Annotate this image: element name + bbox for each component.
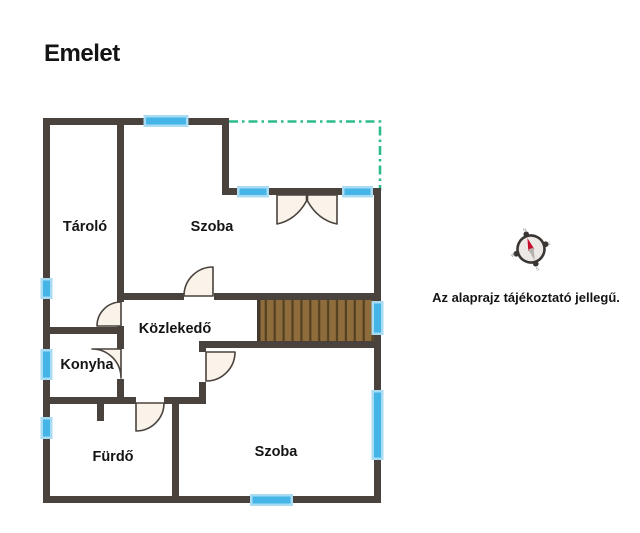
- terrace-boundary-line: [229, 122, 380, 192]
- wall-taroio-konyha: [50, 327, 117, 334]
- compass-east-label: E: [547, 241, 551, 247]
- room-label-furdo: Fürdő: [92, 449, 133, 465]
- wall-taroio-east-mid: [117, 326, 124, 349]
- compass-south-label: S: [535, 266, 539, 272]
- window: [237, 186, 269, 198]
- wall-kozlekedo-north-w: [124, 293, 184, 300]
- door-szoba-top: [184, 267, 213, 296]
- window: [41, 417, 53, 439]
- wall-furdo-north-w: [50, 397, 136, 404]
- window: [372, 301, 384, 335]
- room-label-szoba-top: Szoba: [191, 219, 234, 235]
- wall-taroio-east-upper: [117, 125, 124, 302]
- floor-plan-page: Emelet: [0, 0, 640, 533]
- wall-kozlekedo-north-e: [214, 293, 374, 300]
- room-label-taroio: Tároló: [63, 219, 107, 235]
- wall-outer-bottom: [43, 496, 381, 503]
- wall-furdo-north-e: [164, 397, 199, 404]
- wall-shower-stub: [97, 404, 104, 421]
- wall-outer-left: [43, 118, 50, 503]
- wall-outer-top: [43, 118, 229, 125]
- wall-terrace-left: [222, 118, 229, 195]
- stairs: [257, 300, 374, 341]
- room-label-kozlekedo: Közlekedő: [139, 321, 212, 337]
- window: [41, 278, 53, 299]
- compass-icon: N E S W: [504, 221, 558, 278]
- window: [41, 349, 53, 380]
- door-furdo: [136, 403, 164, 431]
- window: [250, 494, 293, 506]
- wall-stairs-south: [199, 341, 374, 348]
- door-taroio: [97, 302, 121, 326]
- compass-north-label: N: [523, 227, 528, 233]
- wall-furdo-east: [172, 404, 179, 496]
- balcony-double-door: [271, 188, 342, 224]
- window: [144, 115, 189, 127]
- room-label-szoba-bottom: Szoba: [255, 444, 298, 460]
- wall-kozlekedo-east-b: [199, 382, 206, 404]
- wall-kozlekedo-east-a: [199, 348, 206, 352]
- disclaimer-note: Az alaprajz tájékoztató jellegű.: [424, 290, 628, 305]
- window: [342, 186, 373, 198]
- room-label-konyha: Konyha: [60, 357, 113, 373]
- door-szoba-bottom: [206, 352, 235, 381]
- window: [372, 390, 384, 460]
